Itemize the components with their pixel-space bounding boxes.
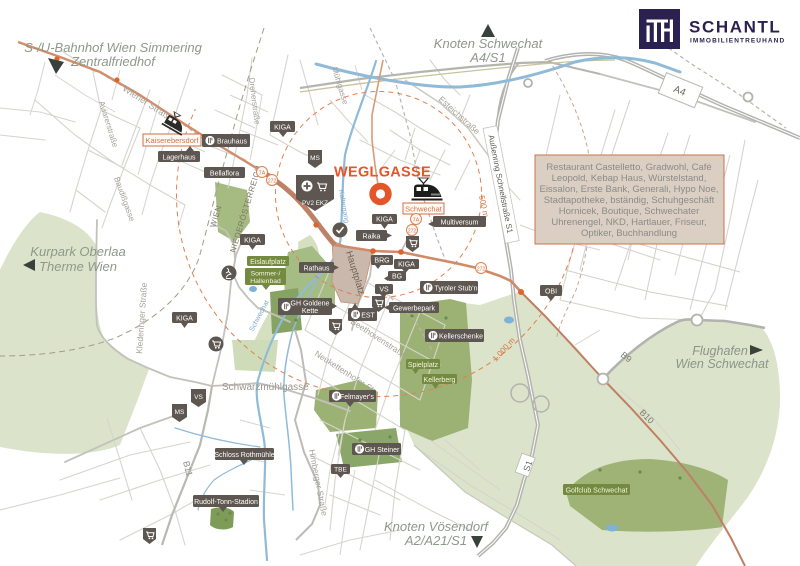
svg-text:Therme Wien: Therme Wien [39, 259, 117, 274]
svg-text:Knoten Schwechat: Knoten Schwechat [434, 36, 544, 51]
svg-text:Tyroler Stub'n: Tyroler Stub'n [435, 286, 478, 293]
svg-text:Stadtapotheke, bständig, Schu: Stadtapotheke, bständig, Schuhgeschäft [544, 195, 715, 206]
svg-text:Multiversum: Multiversum [441, 220, 479, 227]
svg-text:VS: VS [379, 287, 389, 294]
svg-text:Flughafen: Flughafen [692, 344, 748, 358]
svg-text:KIGA: KIGA [176, 316, 193, 323]
svg-text:Leopold, Kebap Haus, Würstelst: Leopold, Kebap Haus, Würstelstand, [552, 173, 707, 184]
svg-text:7A: 7A [413, 218, 420, 224]
svg-text:Knoten Vösendorf: Knoten Vösendorf [384, 519, 489, 534]
svg-text:KIGA: KIGA [244, 238, 261, 245]
svg-text:Kette: Kette [302, 308, 318, 315]
svg-text:Rathaus: Rathaus [303, 266, 330, 273]
svg-text:272: 272 [268, 179, 277, 185]
svg-text:Lagerhaus: Lagerhaus [162, 155, 196, 162]
svg-text:GH Steiner: GH Steiner [365, 447, 400, 454]
svg-text:Felmayer's: Felmayer's [340, 394, 375, 401]
svg-text:Kellerberg: Kellerberg [424, 377, 456, 384]
svg-text:Kurpark Oberlaa: Kurpark Oberlaa [30, 244, 125, 259]
svg-text:KIGA: KIGA [274, 125, 291, 132]
svg-text:VS: VS [194, 394, 203, 401]
svg-text:Zentralfriedhof: Zentralfriedhof [70, 54, 156, 69]
svg-text:Optiker, Buchhandlung: Optiker, Buchhandlung [581, 228, 677, 239]
svg-text:Bellaflora: Bellaflora [210, 171, 239, 178]
svg-text:PV2 EKZ: PV2 EKZ [302, 200, 328, 207]
svg-text:Wien Schwechat: Wien Schwechat [676, 357, 770, 371]
svg-text:EST: EST [361, 313, 375, 320]
svg-text:S-/U-Bahnhof Wien Simmering: S-/U-Bahnhof Wien Simmering [24, 40, 202, 55]
svg-text:Eissalon, Erste Bank, Generali: Eissalon, Erste Bank, Generali, Hypo Noe… [539, 184, 718, 195]
svg-text:Schwarzmühlgasse: Schwarzmühlgasse [222, 382, 309, 393]
svg-text:Hornicek, Boutique, Schwechate: Hornicek, Boutique, Schwechater [559, 206, 699, 217]
svg-text:Schloss Rothmühle: Schloss Rothmühle [214, 452, 274, 459]
svg-text:BRG: BRG [374, 258, 389, 265]
svg-text:Golfclub Schwechat: Golfclub Schwechat [566, 488, 628, 495]
svg-text:Kaiserebersdorf: Kaiserebersdorf [146, 136, 200, 145]
svg-text:Rudolf-Tonn-Stadion: Rudolf-Tonn-Stadion [194, 499, 258, 506]
svg-text:Spielplatz: Spielplatz [408, 362, 439, 369]
svg-text:Uhrenengel, NKD, Hartlauer, Fr: Uhrenengel, NKD, Hartlauer, Friseur, [551, 217, 706, 228]
svg-text:272: 272 [408, 229, 417, 235]
svg-text:7A: 7A [259, 171, 266, 177]
svg-text:Gewerbepark: Gewerbepark [393, 306, 436, 313]
svg-text:SCHANTL: SCHANTL [689, 18, 781, 37]
svg-text:Sommer-/: Sommer-/ [251, 271, 281, 278]
svg-text:KIGA: KIGA [376, 217, 393, 224]
svg-text:WEGLGASSE: WEGLGASSE [334, 165, 431, 181]
svg-text:GH Goldene: GH Goldene [291, 301, 330, 308]
svg-text:Schwechat: Schwechat [405, 205, 443, 214]
svg-text:Raika: Raika [363, 234, 381, 241]
svg-text:MS: MS [175, 409, 185, 416]
svg-text:OBI: OBI [545, 289, 557, 296]
svg-text:Eislaufplatz: Eislaufplatz [250, 259, 286, 266]
svg-text:A2/A21/S1: A2/A21/S1 [404, 533, 467, 548]
svg-text:Restaurant Castelletto, Gradwo: Restaurant Castelletto, Gradwohl, Café [546, 162, 711, 173]
svg-text:Brauhaus: Brauhaus [217, 139, 247, 146]
svg-text:A4/S1: A4/S1 [469, 50, 505, 65]
svg-text:MS: MS [310, 155, 320, 162]
svg-text:BG: BG [392, 274, 402, 281]
svg-text:Hallenbad: Hallenbad [250, 278, 281, 285]
svg-text:KIGA: KIGA [398, 262, 415, 269]
svg-text:IMMOBILIENTREUHAND: IMMOBILIENTREUHAND [690, 38, 785, 45]
svg-text:Kellerschenke: Kellerschenke [439, 334, 483, 341]
svg-text:TBE: TBE [334, 467, 347, 474]
svg-text:272: 272 [477, 267, 486, 273]
